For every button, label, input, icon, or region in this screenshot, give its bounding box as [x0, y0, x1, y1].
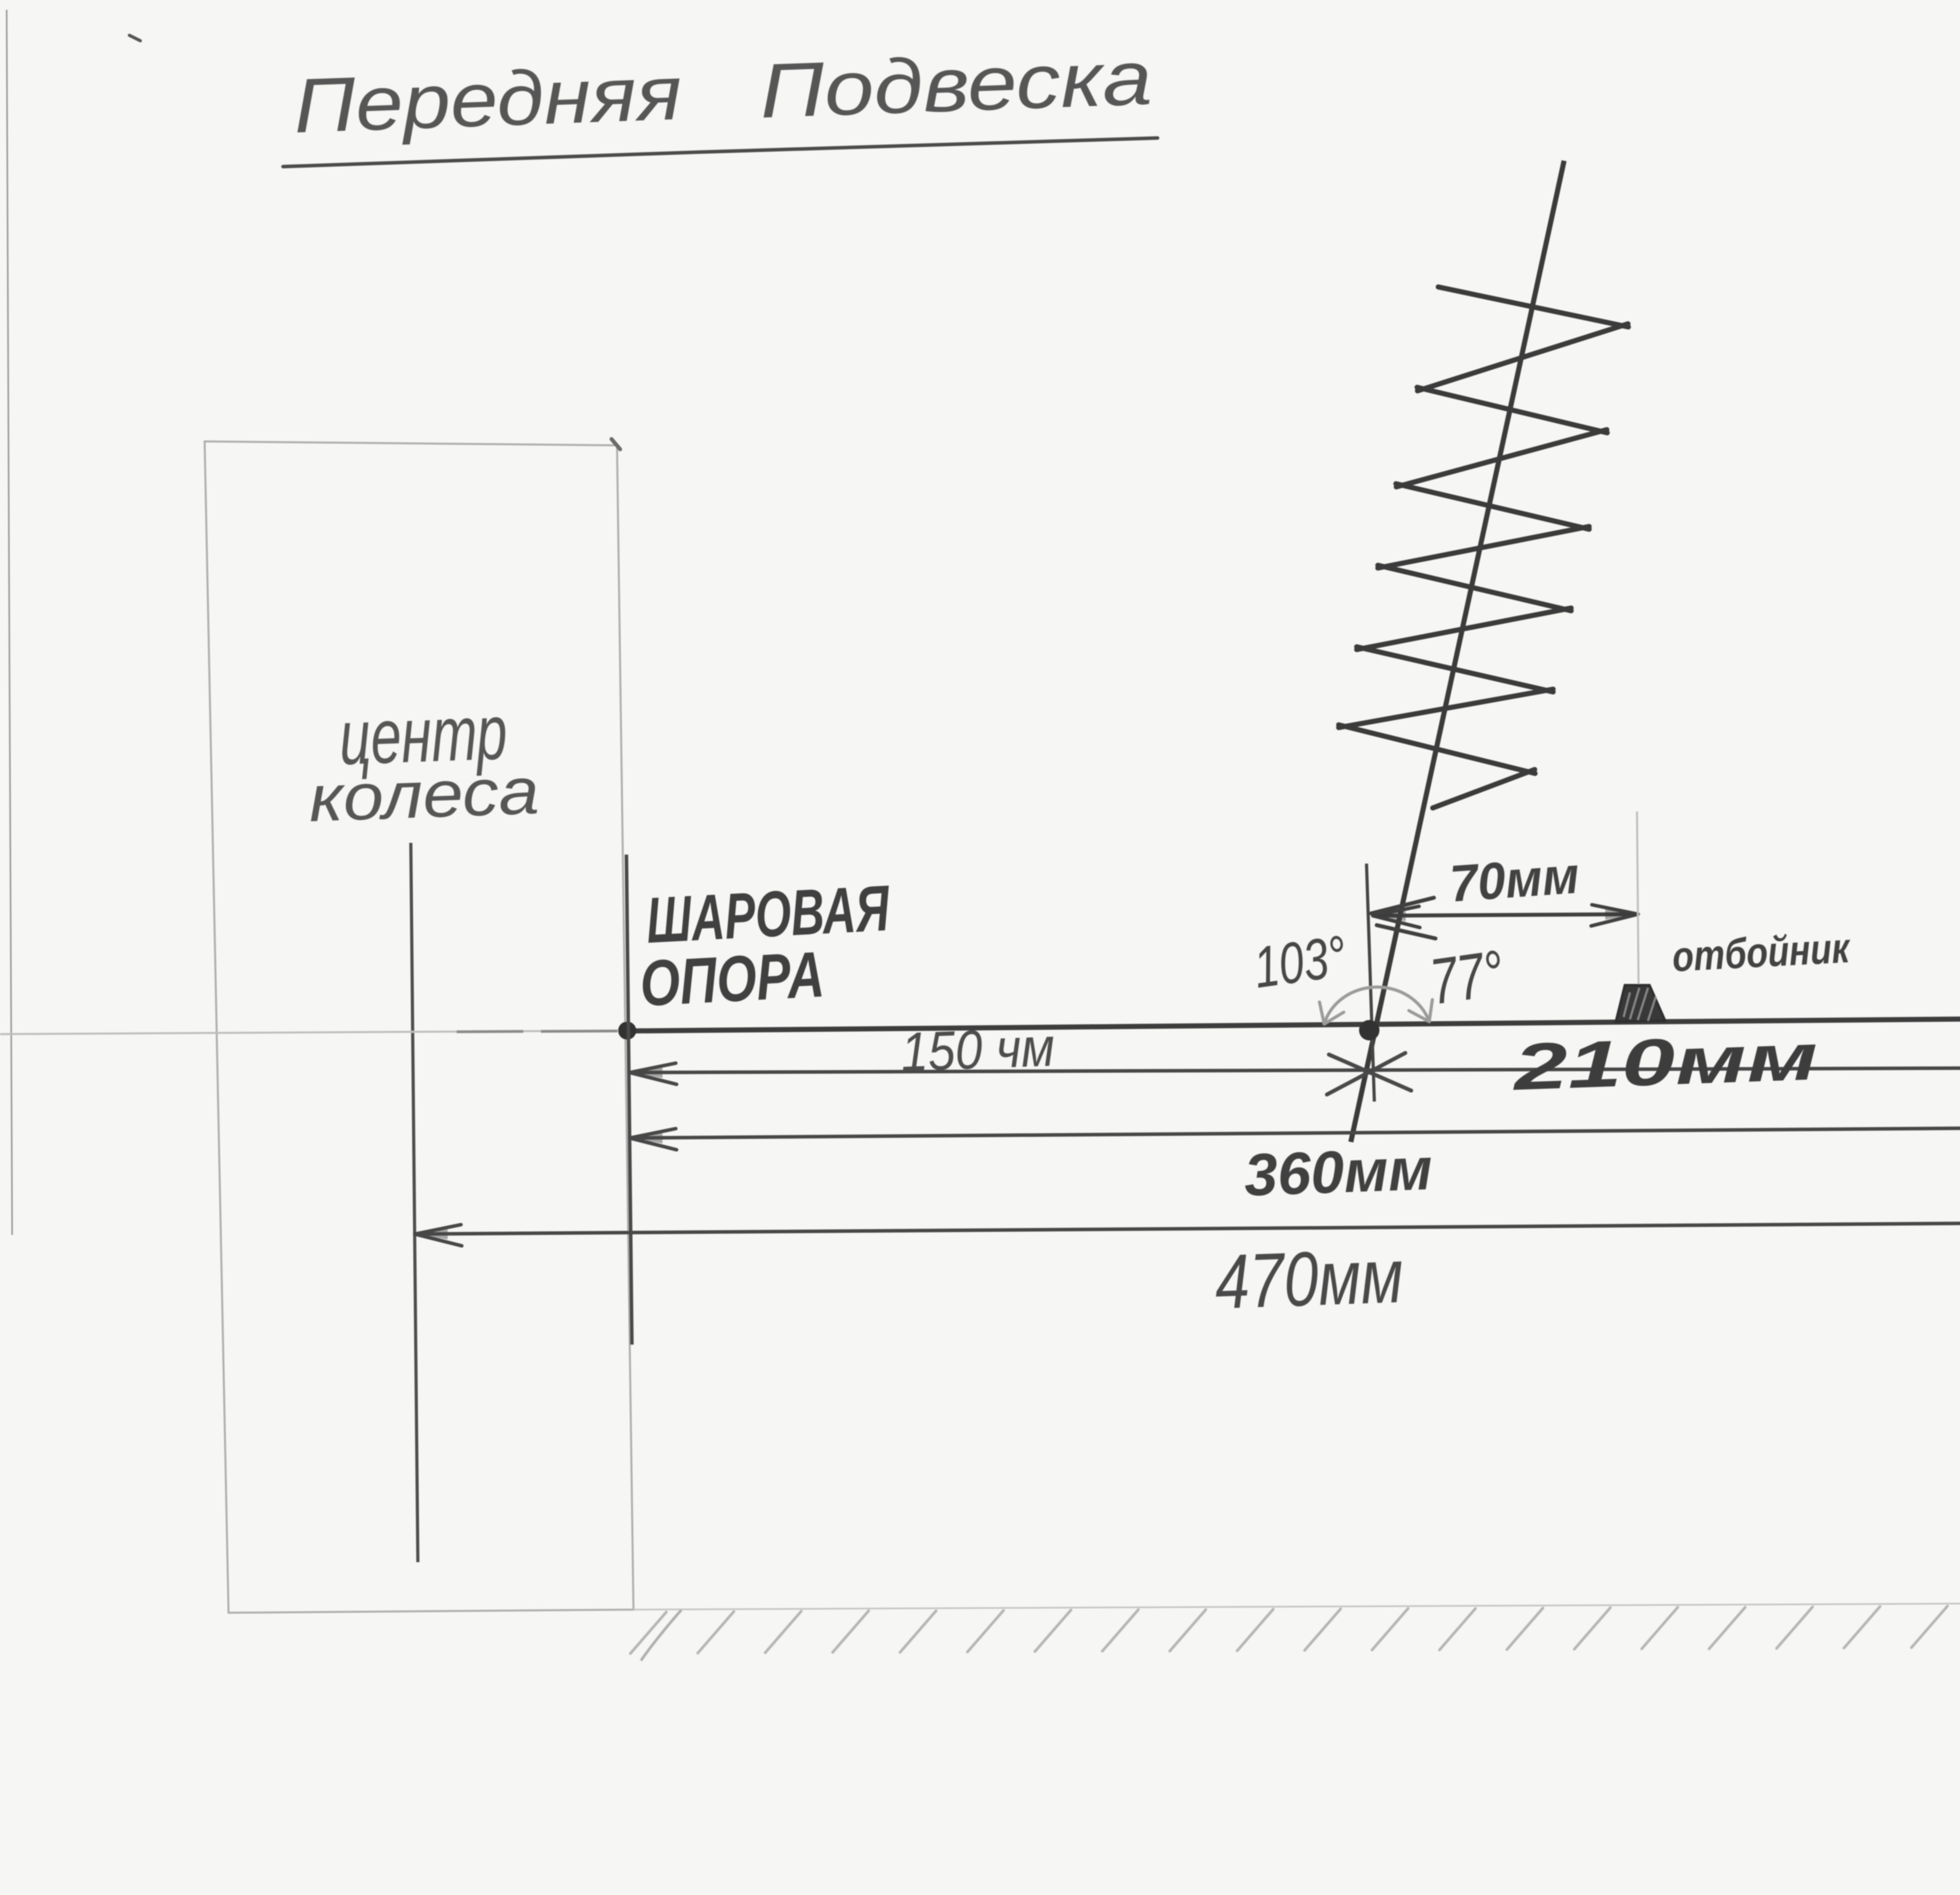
svg-text:150 чм: 150 чм [900, 1016, 1056, 1083]
svg-text:колеса: колеса [308, 754, 540, 835]
svg-text:103°: 103° [1250, 924, 1350, 1000]
svg-text:Подвеска: Подвеска [759, 34, 1153, 134]
svg-text:360мм: 360мм [1243, 1135, 1434, 1209]
svg-text:77°: 77° [1426, 937, 1508, 1018]
svg-text:Передняя: Передняя [292, 50, 683, 149]
svg-text:ОПОРА: ОПОРА [638, 938, 826, 1020]
svg-text:210мм: 210мм [1511, 1020, 1819, 1104]
svg-text:отбойник: отбойник [1671, 924, 1852, 980]
svg-text:470мм: 470мм [1214, 1232, 1405, 1325]
svg-text:70мм: 70мм [1448, 846, 1581, 913]
